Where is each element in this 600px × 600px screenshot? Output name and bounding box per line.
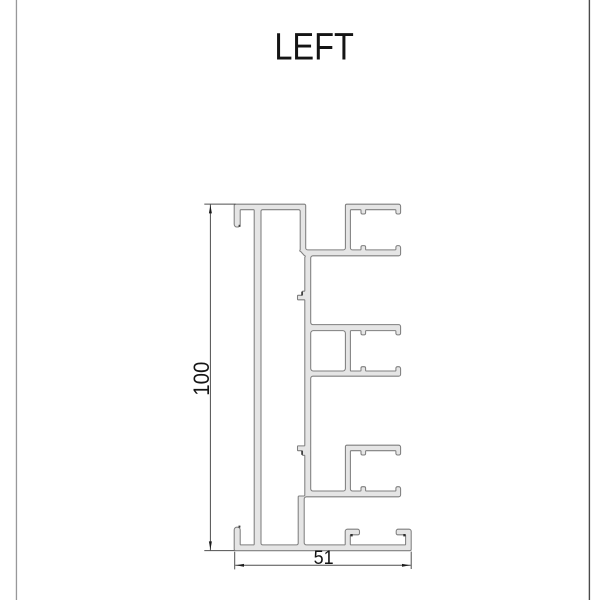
svg-text:51: 51 xyxy=(314,548,334,569)
svg-text:100: 100 xyxy=(189,362,214,396)
svg-text:LEFT: LEFT xyxy=(274,26,354,68)
